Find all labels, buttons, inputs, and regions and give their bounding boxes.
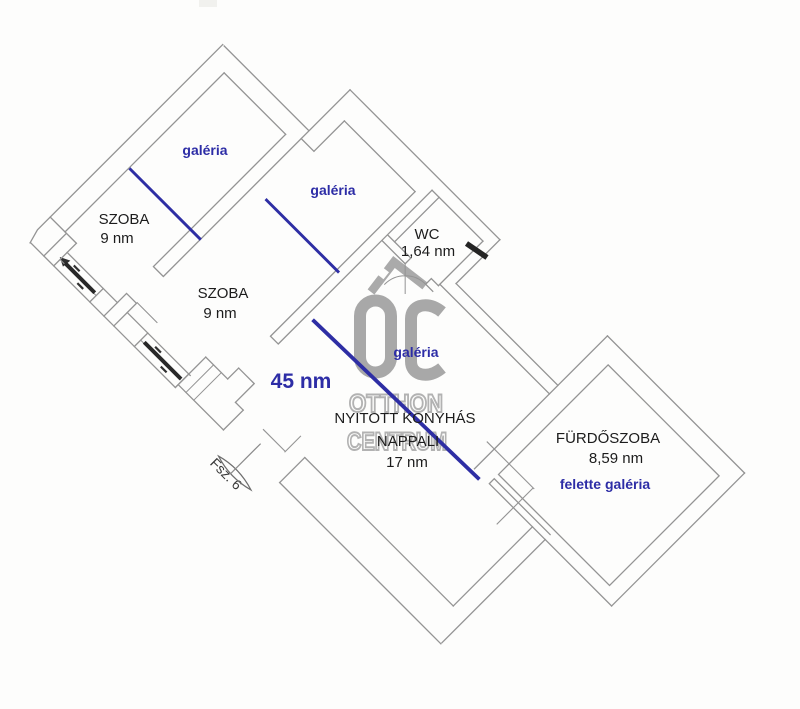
svg-text:SZOBA: SZOBA	[99, 211, 150, 228]
svg-text:NYITOTT KONYHÁS: NYITOTT KONYHÁS	[334, 410, 475, 427]
svg-text:8,59 nm: 8,59 nm	[589, 450, 643, 467]
svg-text:galéria: galéria	[310, 182, 355, 198]
svg-text:felette galéria: felette galéria	[560, 476, 650, 492]
svg-text:WC: WC	[415, 226, 440, 243]
svg-text:1,64 nm: 1,64 nm	[401, 243, 455, 260]
svg-text:9 nm: 9 nm	[203, 305, 236, 322]
svg-text:galéria: galéria	[393, 344, 438, 360]
svg-text:galéria: galéria	[182, 142, 227, 158]
svg-text:FÜRDŐSZOBA: FÜRDŐSZOBA	[556, 429, 660, 447]
svg-text:SZOBA: SZOBA	[198, 285, 249, 302]
svg-text:NAPPALI: NAPPALI	[377, 433, 439, 450]
svg-text:9 nm: 9 nm	[100, 230, 133, 247]
svg-text:45 nm: 45 nm	[271, 370, 332, 393]
svg-text:17 nm: 17 nm	[386, 454, 428, 471]
